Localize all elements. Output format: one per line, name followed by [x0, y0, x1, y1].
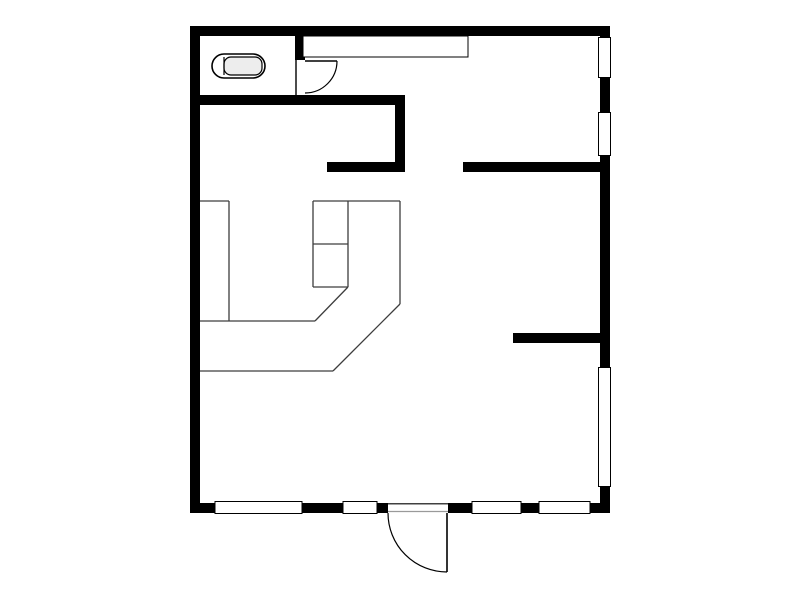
hall-south-wall — [327, 162, 405, 172]
window-bottom-1 — [215, 502, 302, 514]
window-right-middle — [599, 113, 611, 156]
window-bottom-3 — [472, 502, 521, 514]
floor-plan-page — [0, 0, 800, 600]
closet — [303, 36, 468, 57]
floor-plan-canvas — [0, 0, 800, 600]
wc-south-wall — [190, 95, 405, 105]
window-right-upper — [599, 38, 611, 78]
hall-west-wall — [395, 105, 405, 172]
east-room-south-wall — [513, 333, 610, 343]
top-exterior-wall — [190, 26, 610, 36]
east-room-north-wall — [463, 162, 610, 172]
window-bottom-4 — [539, 502, 590, 514]
window-right-lower — [599, 368, 611, 487]
toilet-fixture — [212, 54, 265, 78]
toilet-tank — [224, 57, 262, 75]
window-bottom-2 — [343, 502, 377, 514]
